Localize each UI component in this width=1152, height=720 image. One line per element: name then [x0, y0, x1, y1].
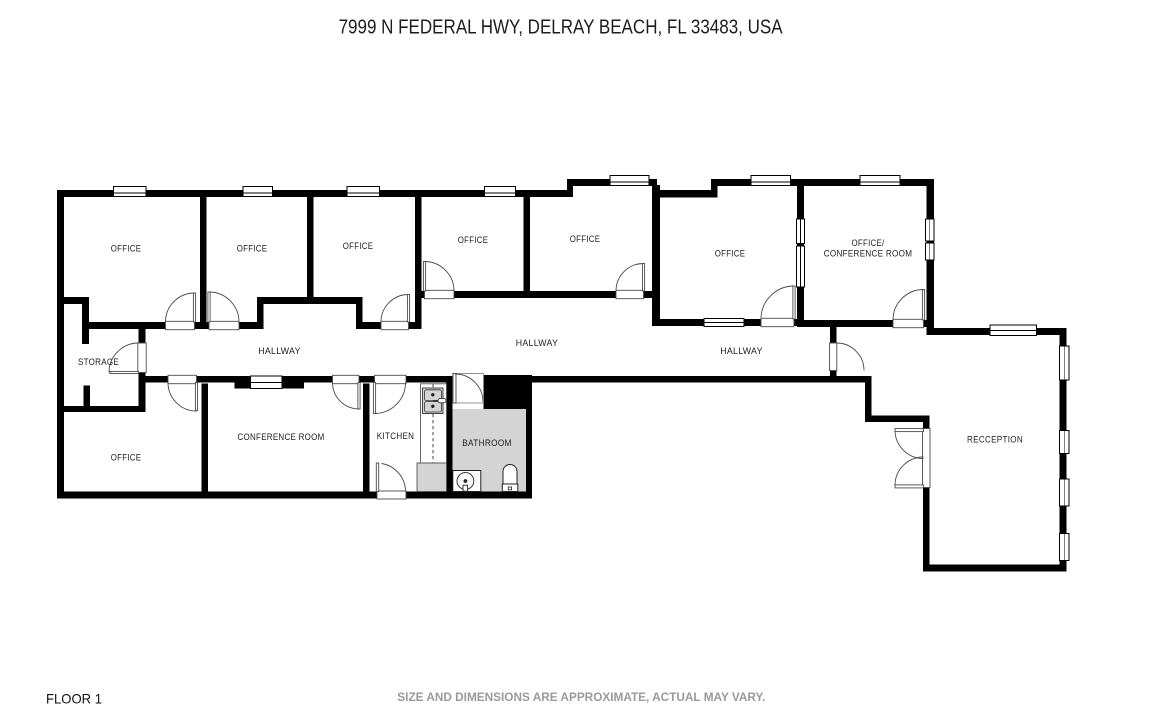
svg-text:OFFICE: OFFICE	[111, 243, 142, 254]
svg-text:SIZE AND DIMENSIONS ARE APPROX: SIZE AND DIMENSIONS ARE APPROXIMATE, ACT…	[397, 690, 765, 704]
svg-text:HALLWAY: HALLWAY	[258, 346, 301, 357]
svg-text:7999 N FEDERAL HWY, DELRAY BEA: 7999 N FEDERAL HWY, DELRAY BEACH, FL 334…	[339, 16, 783, 39]
svg-text:OFFICE: OFFICE	[111, 452, 142, 463]
svg-text:OFFICE: OFFICE	[343, 241, 374, 252]
svg-text:BATHROOM: BATHROOM	[462, 438, 512, 449]
svg-text:HALLWAY: HALLWAY	[516, 338, 559, 349]
svg-text:RECCEPTION: RECCEPTION	[967, 434, 1023, 445]
svg-text:OFFICE: OFFICE	[570, 234, 601, 245]
svg-text:OFFICE: OFFICE	[715, 248, 746, 259]
svg-text:STORAGE: STORAGE	[78, 357, 119, 368]
svg-text:OFFICE/: OFFICE/	[852, 238, 885, 249]
svg-text:OFFICE: OFFICE	[237, 243, 268, 254]
svg-text:OFFICE: OFFICE	[458, 235, 489, 246]
svg-text:HALLWAY: HALLWAY	[720, 346, 763, 357]
svg-text:FLOOR 1: FLOOR 1	[46, 691, 102, 707]
svg-text:CONFERENCE ROOM: CONFERENCE ROOM	[238, 432, 325, 443]
svg-text:KITCHEN: KITCHEN	[377, 431, 415, 442]
svg-text:CONFERENCE ROOM: CONFERENCE ROOM	[824, 248, 913, 259]
